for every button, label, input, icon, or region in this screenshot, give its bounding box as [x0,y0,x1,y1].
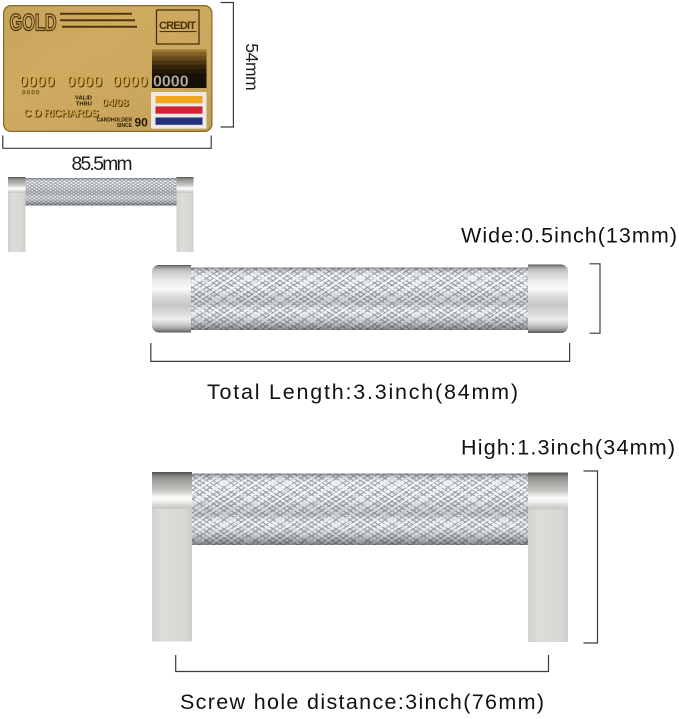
svg-text:SINCE: SINCE [117,123,133,129]
svg-text:GOLD: GOLD [10,9,57,36]
svg-text:0000: 0000 [67,74,103,91]
svg-text:CREDIT: CREDIT [159,20,196,32]
svg-text:High:1.3inch(34mm): High:1.3inch(34mm) [461,435,675,459]
svg-text:Wide:0.5inch(13mm): Wide:0.5inch(13mm) [461,224,677,248]
svg-text:54mm: 54mm [242,43,262,91]
svg-text:0000: 0000 [19,74,55,91]
svg-text:90: 90 [135,116,149,130]
svg-text:Screw hole distance:3inch(76mm: Screw hole distance:3inch(76mm) [180,690,544,714]
svg-text:0000: 0000 [153,74,189,91]
svg-text:04/08: 04/08 [102,97,128,109]
svg-text:C D RICHARDS: C D RICHARDS [24,108,99,120]
svg-text:85.5mm: 85.5mm [72,154,133,175]
svg-text:0000: 0000 [22,90,40,97]
svg-text:Total Length:3.3inch(84mm): Total Length:3.3inch(84mm) [207,380,518,404]
svg-text:0000: 0000 [112,74,148,91]
